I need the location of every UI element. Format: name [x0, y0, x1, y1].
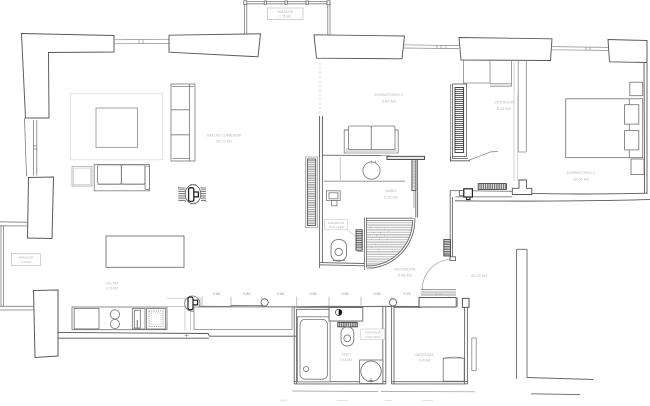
svg-text:0.84: 0.84 — [309, 292, 316, 296]
svg-text:TOALLERO: TOALLERO — [365, 335, 382, 339]
svg-text:MIRADOR: MIRADOR — [19, 256, 34, 260]
svg-text:SALON COMEDOR: SALON COMEDOR — [207, 134, 242, 138]
svg-text:RADIADOR: RADIADOR — [328, 221, 345, 225]
svg-text:5.28 M2: 5.28 M2 — [497, 107, 511, 111]
svg-text:0.84: 0.84 — [341, 292, 348, 296]
svg-text:90.29 M2: 90.29 M2 — [471, 274, 487, 278]
svg-text:1.35 M2: 1.35 M2 — [279, 15, 291, 19]
svg-text:MIRADOR: MIRADOR — [277, 10, 293, 14]
svg-text:DORMITORIO 1: DORMITORIO 1 — [567, 171, 595, 175]
svg-text:39.23 M2: 39.23 M2 — [216, 140, 232, 144]
svg-text:3.46 M2: 3.46 M2 — [418, 358, 430, 362]
svg-text:9.84 M2: 9.84 M2 — [382, 100, 396, 104]
svg-text:1.40 M2: 1.40 M2 — [21, 260, 32, 264]
svg-text:RECIBIDOR: RECIBIDOR — [394, 268, 416, 272]
svg-text:ASEO: ASEO — [341, 353, 351, 357]
svg-text:DESPENSA: DESPENSA — [416, 353, 435, 357]
svg-text:0.84: 0.84 — [373, 292, 380, 296]
svg-text:5.08 M2: 5.08 M2 — [398, 274, 412, 278]
svg-text:0.84: 0.84 — [277, 292, 284, 296]
svg-text:VESTIDOR: VESTIDOR — [494, 101, 514, 105]
svg-text:DORMITORIO 2: DORMITORIO 2 — [375, 93, 403, 97]
svg-text:5.26 M2: 5.26 M2 — [384, 196, 398, 200]
svg-text:COCINA: COCINA — [106, 282, 120, 286]
svg-text:TOALLERO: TOALLERO — [328, 225, 345, 229]
svg-text:8.76 M2: 8.76 M2 — [106, 286, 118, 290]
svg-text:2.44 M2: 2.44 M2 — [340, 358, 352, 362]
svg-text:0.84: 0.84 — [243, 292, 250, 296]
svg-text:0.75: 0.75 — [403, 292, 410, 296]
svg-text:BAÑO: BAÑO — [386, 188, 397, 193]
svg-text:RADIADOR: RADIADOR — [365, 331, 382, 335]
svg-text:16.06 M2: 16.06 M2 — [573, 178, 589, 182]
svg-text:0.84: 0.84 — [213, 292, 220, 296]
